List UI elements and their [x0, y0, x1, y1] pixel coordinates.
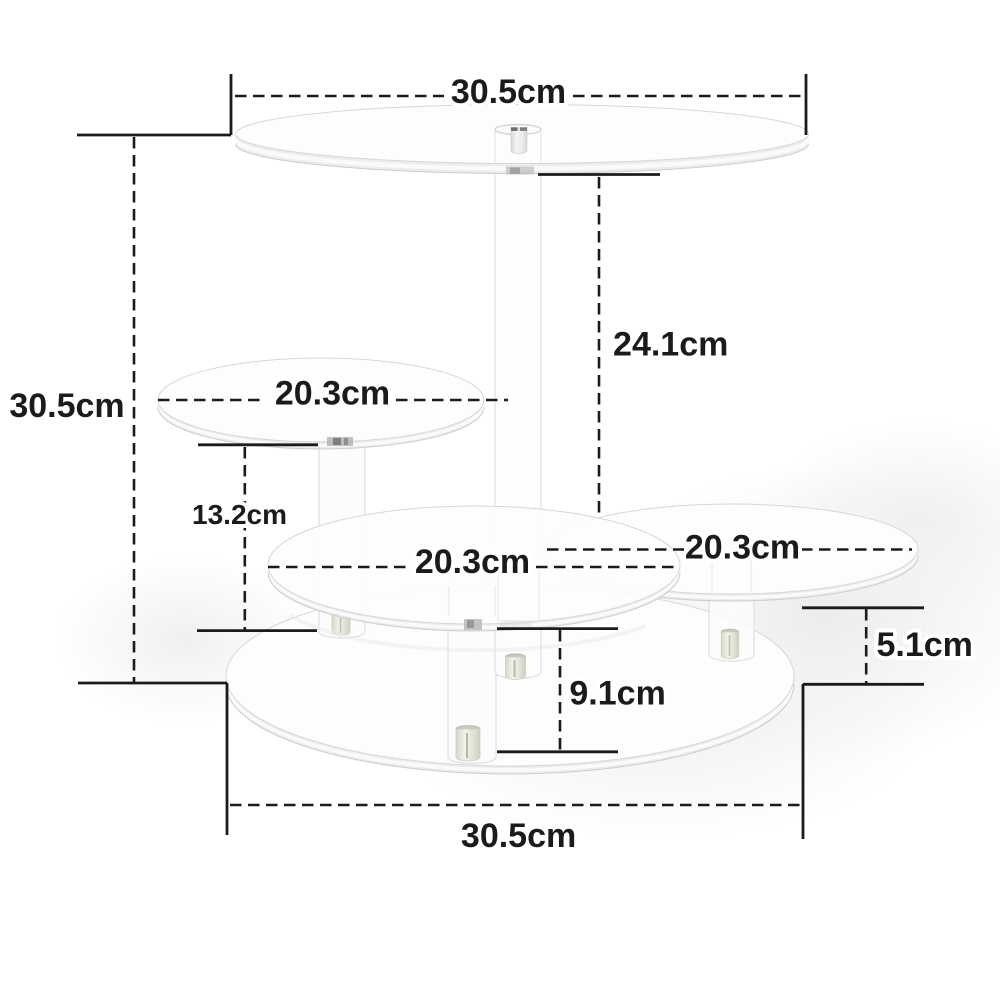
svg-text:30.5cm: 30.5cm — [9, 387, 124, 425]
svg-text:5.1cm: 5.1cm — [876, 626, 972, 664]
svg-text:13.2cm: 13.2cm — [192, 499, 287, 530]
svg-text:9.1cm: 9.1cm — [569, 675, 665, 713]
svg-text:30.5cm: 30.5cm — [451, 73, 566, 111]
svg-text:20.3cm: 20.3cm — [275, 375, 390, 413]
svg-text:20.3cm: 20.3cm — [415, 543, 530, 581]
svg-text:30.5cm: 30.5cm — [461, 817, 576, 855]
svg-text:24.1cm: 24.1cm — [613, 326, 728, 364]
svg-text:20.3cm: 20.3cm — [685, 529, 800, 567]
